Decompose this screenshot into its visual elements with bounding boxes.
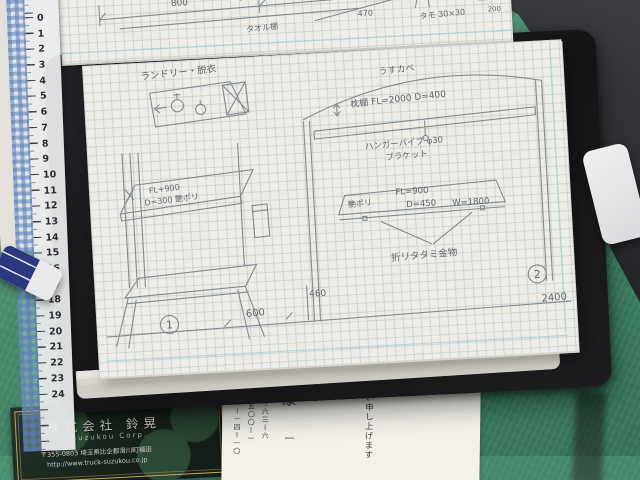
drawing-number: 1 <box>166 318 174 331</box>
counter-dim: FL=900 <box>395 186 428 198</box>
furniture-sketch: ランドリー・脱衣 FL+900 D=300 艶ポリ 1 600 460 うすカベ… <box>82 39 579 377</box>
ruler-number: 6 <box>40 104 54 120</box>
pipe-note: ハンガーパイプ φ30 <box>364 134 443 152</box>
dim-label: 470 <box>357 9 373 19</box>
ruler-number: 10 <box>43 167 57 183</box>
ruler-number: 4 <box>39 73 53 89</box>
ruler-number: 21 <box>49 340 63 356</box>
wall-label: うすカベ <box>378 63 415 78</box>
counter-dim: W=1800 <box>452 196 490 208</box>
counter-dim: D=450 <box>406 198 436 210</box>
dim-label: 800 <box>171 0 189 9</box>
notebook-page: ランドリー・脱衣 FL+900 D=300 艶ポリ 1 600 460 うすカベ… <box>82 39 579 377</box>
ruler-number: 20 <box>49 324 63 340</box>
note-label: タオル棚 <box>246 21 279 34</box>
ruler-number: 12 <box>44 198 58 214</box>
ruler-number: 2 <box>38 42 52 58</box>
desk-photo-scene: 800 400 タオル棚 470 タモ 30×30 200 <box>0 0 640 480</box>
dim-label: 2400 <box>541 291 567 304</box>
ruler-number: 19 <box>48 308 62 324</box>
ruler-number: 13 <box>45 214 59 230</box>
laundry-label: ランドリー・脱衣 <box>140 63 217 83</box>
ruler-number: 3 <box>39 57 53 73</box>
letter-char: 一 <box>280 433 295 444</box>
ruler-number: 1 <box>37 26 51 42</box>
dim-label: 460 <box>309 289 327 300</box>
ruler-number: 15 <box>46 245 60 261</box>
ruler-number: 5 <box>40 89 54 105</box>
ruler-number: 0 <box>37 10 51 26</box>
shadow-right-bottom <box>572 391 607 480</box>
ruler-number: 11 <box>43 183 57 199</box>
ruler-number: 14 <box>45 230 59 246</box>
shelf-label: 枕棚 FL=2000 D=400 <box>350 88 447 110</box>
stand-dim: FL+900 <box>148 183 180 196</box>
dim-label: 600 <box>245 307 265 320</box>
counter-material: 艶ポリ <box>347 197 372 210</box>
ruler-number: 8 <box>42 136 56 152</box>
ruler-number: 7 <box>41 120 55 136</box>
ruler-number: 22 <box>50 355 64 371</box>
ruler-number: 24 <box>51 387 65 403</box>
note-label: タモ 30×30 <box>419 7 465 21</box>
drawing-number: 2 <box>533 268 541 281</box>
dim-label: 200 <box>487 5 501 14</box>
folding-note: 折リタタミ金物 <box>391 246 459 264</box>
pipe-note: ブラケット <box>385 148 428 163</box>
letter-greeting: い申し上げます <box>362 393 375 460</box>
ruler-number: 23 <box>51 371 65 387</box>
ruler-number: 9 <box>42 151 56 167</box>
